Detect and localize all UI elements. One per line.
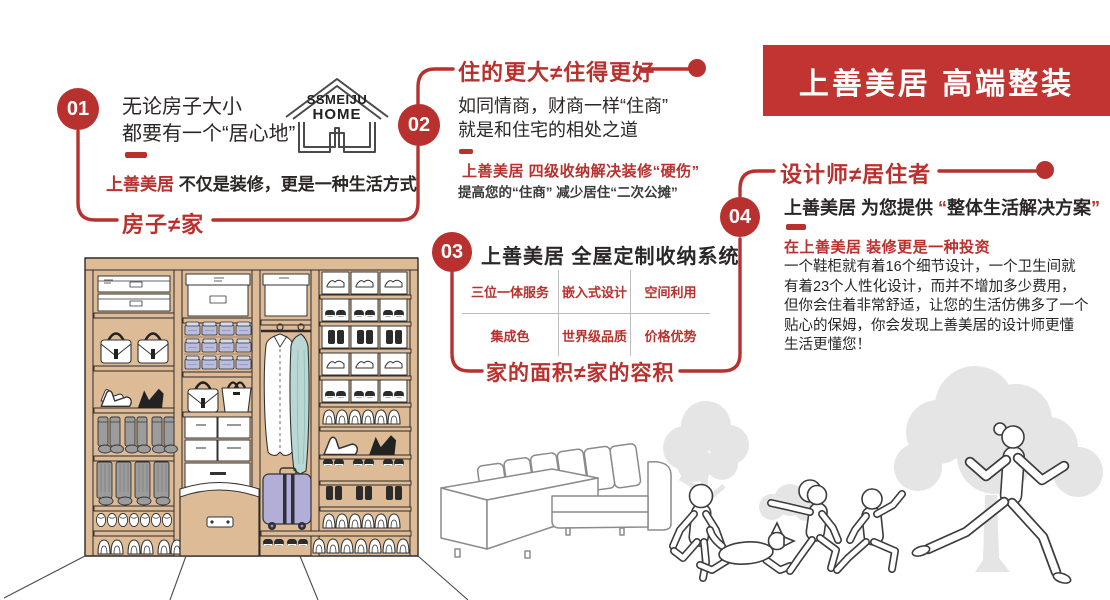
step-02-subnote: 提高您的“住商” 减少居住“二次公摊” [458,181,678,201]
step-01-dash [125,152,147,158]
step-01-intro-line2: 都要有一个“居心地” [122,121,295,148]
top-banner: 上善美居 高端整装 [763,45,1110,116]
step-01-tagline-rest: 不仅是装修，更是一种生活方式 [179,175,417,194]
step-04-note: 在上善美居 装修更是一种投资 [784,236,990,257]
boy-figure [837,489,902,570]
dog-figure [700,523,794,570]
wardrobe-illustration [4,258,468,600]
logo-text-line1: SSMEIJU [283,92,391,107]
ottoman [180,483,259,557]
paragraph-line: 一个鞋柜就有着16个细节设计，一个卫生间就 [784,258,1089,278]
step-03-title: 上善美居 全屋定制收纳系统 [481,240,740,269]
feature-cell: 价格优势 [630,313,710,356]
step-02-body-line2: 就是和住宅的相处之道 [458,118,638,142]
step-01-tagline: 上善美居 不仅是装修，更是一种生活方式 [106,170,417,195]
step-04-dash [786,224,806,230]
step-04-promise-text: 整体生活解决方案 [947,198,1091,218]
logo-text-line2: HOME [283,106,391,123]
sofa-illustration [441,441,671,558]
paragraph-line: 有着23个人性化设计，而并不增加多少费用， [784,278,1089,298]
step-04-promise-brand: 上善美居 [784,198,856,218]
banner-title: 上善美居 高端整装 [799,59,1074,103]
step-02-body-line1: 如同情商，财商一样“住商” [458,94,668,118]
step-01-tagline-brand: 上善美居 [106,175,174,194]
step-01-badge: 01 [57,88,99,130]
features-table: 三位一体服务 嵌入式设计 空间利用 集成色 世界级品质 价格优势 [462,270,710,356]
floor-lines [4,556,468,600]
step-02-headline: 住的更大≠住得更好 [458,55,655,87]
connector-step2 [418,69,453,104]
paragraph-line: 但你会住着非常舒适，让您的生活仿佛多了一个 [784,297,1089,317]
step-04-open-quote: “ [938,198,947,218]
step-04-badge: 04 [720,197,760,237]
paragraph-line: 生活更懂您！ [784,336,1089,356]
feature-cell: 嵌入式设计 [558,270,630,313]
feature-cell: 集成色 [462,313,558,356]
step-04-promise: 上善美居 为您提供 “整体生活解决方案” [784,194,1100,220]
terminal-dot-step4 [1036,161,1054,179]
step-02-badge: 02 [398,104,440,146]
step-02-note: 上善美居 四级收纳解决装修“硬伤” [462,160,700,181]
step-04-promise-mid: 为您提供 [856,198,938,218]
connector-step4 [740,171,774,196]
poster: .limb-o{fill:none;stroke:#3c3c3c;stroke-… [0,0,1110,600]
feature-cell: 空间利用 [630,270,710,313]
paragraph-line: 贴心的保姆，你会发现上善美居的设计师更懂 [784,317,1089,337]
step-01-intro-line1: 无论房子大小 [122,94,242,121]
feature-cell: 三位一体服务 [462,270,558,313]
step-03-headline: 家的面积≠家的容积 [486,357,675,387]
feature-cell: 世界级品质 [558,313,630,356]
step-03-badge: 03 [432,232,472,272]
step-01-headline: 房子≠家 [122,207,204,239]
step-02-dash [459,149,473,154]
step-04-paragraph: 一个鞋柜就有着16个细节设计，一个卫生间就 有着23个人性化设计，而并不增加多少… [784,258,1089,356]
terminal-dot-step2 [688,59,706,77]
step-04-close-quote: ” [1091,198,1100,218]
step-04-headline: 设计师≠居住者 [780,157,931,189]
